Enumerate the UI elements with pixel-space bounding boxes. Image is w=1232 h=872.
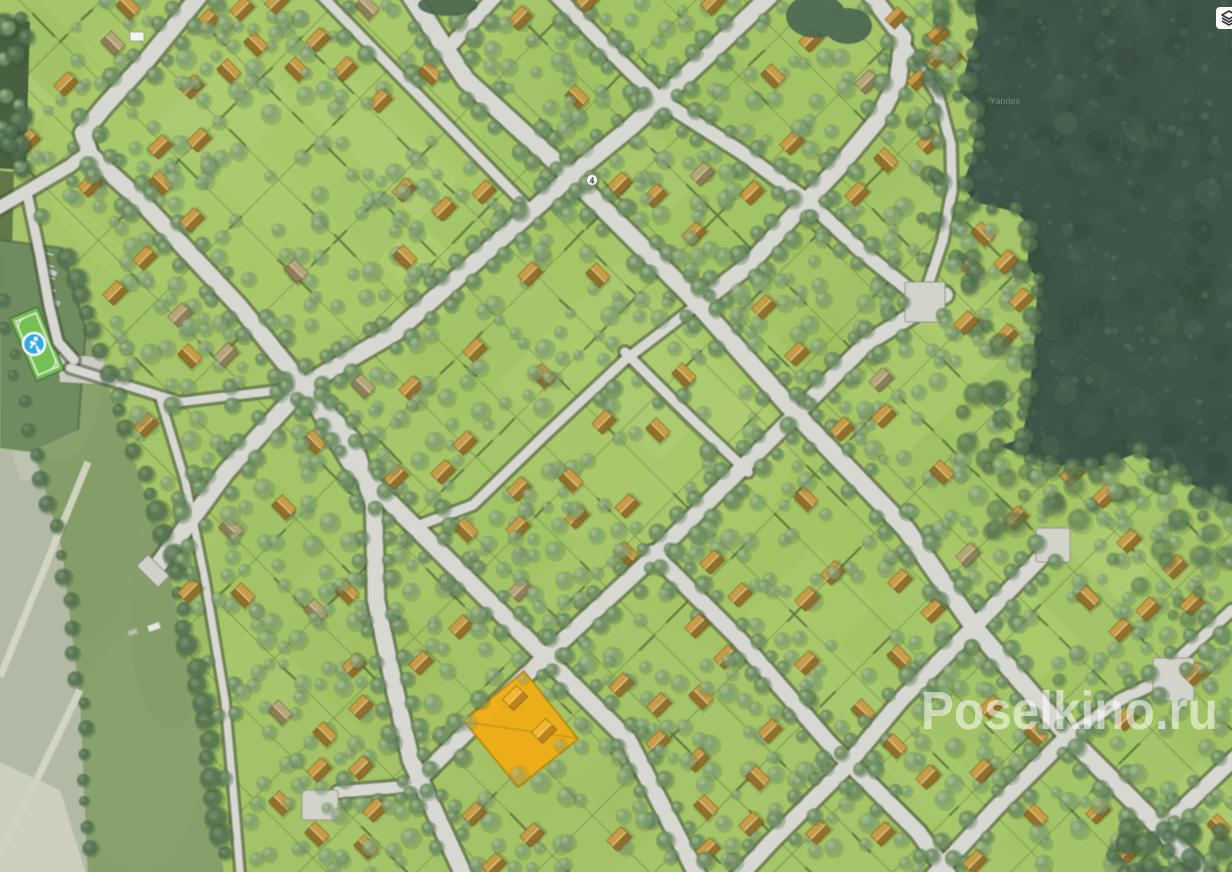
svg-text:Poselkino.ru: Poselkino.ru (921, 681, 1218, 741)
svg-text:4: 4 (590, 177, 595, 186)
svg-text:Yandex: Yandex (990, 96, 1020, 106)
